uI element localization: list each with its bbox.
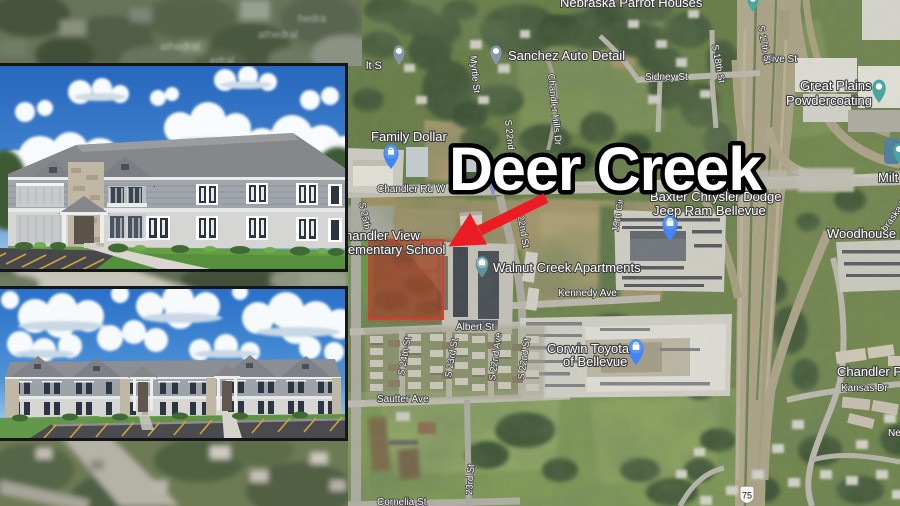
svg-text:athedral: athedral (160, 41, 200, 53)
svg-text:lt S: lt S (366, 60, 382, 72)
svg-text:Family Dollar: Family Dollar (371, 129, 448, 144)
svg-text:athedral: athedral (258, 29, 298, 41)
svg-text:Walnut Creek Apartments: Walnut Creek Apartments (493, 260, 641, 275)
svg-text:Neb: Neb (888, 428, 900, 439)
svg-text:Chandler Po: Chandler Po (837, 364, 900, 379)
svg-text:Jeep Ram Bellevue: Jeep Ram Bellevue (653, 203, 766, 218)
svg-text:of Bellevue: of Bellevue (563, 354, 627, 369)
svg-text:handler View: handler View (345, 228, 421, 243)
svg-text:Powdercoating: Powdercoating (786, 93, 872, 108)
svg-text:lementary School: lementary School (345, 242, 446, 257)
svg-text:Cornelia St: Cornelia St (377, 497, 427, 506)
svg-text:Kennedy Ave: Kennedy Ave (558, 288, 617, 299)
svg-text:Deer Creek: Deer Creek (449, 135, 762, 203)
svg-text:75: 75 (742, 491, 752, 501)
svg-text:Great Plains: Great Plains (800, 78, 872, 93)
svg-text:23rd St: 23rd St (464, 464, 477, 496)
svg-text:Kansas Dr: Kansas Dr (841, 383, 888, 394)
svg-text:Milt: Milt (878, 170, 899, 185)
svg-text:Nebraska Parrot Houses: Nebraska Parrot Houses (560, 0, 703, 10)
svg-text:Sidney St: Sidney St (645, 72, 688, 83)
svg-text:Chandler Rd W: Chandler Rd W (377, 184, 446, 195)
svg-text:Sautter Ave: Sautter Ave (377, 394, 429, 405)
svg-text:Albert St: Albert St (456, 322, 495, 333)
svg-text:hedra: hedra (298, 13, 327, 25)
svg-text:Sanchez Auto Detail: Sanchez Auto Detail (508, 48, 625, 63)
